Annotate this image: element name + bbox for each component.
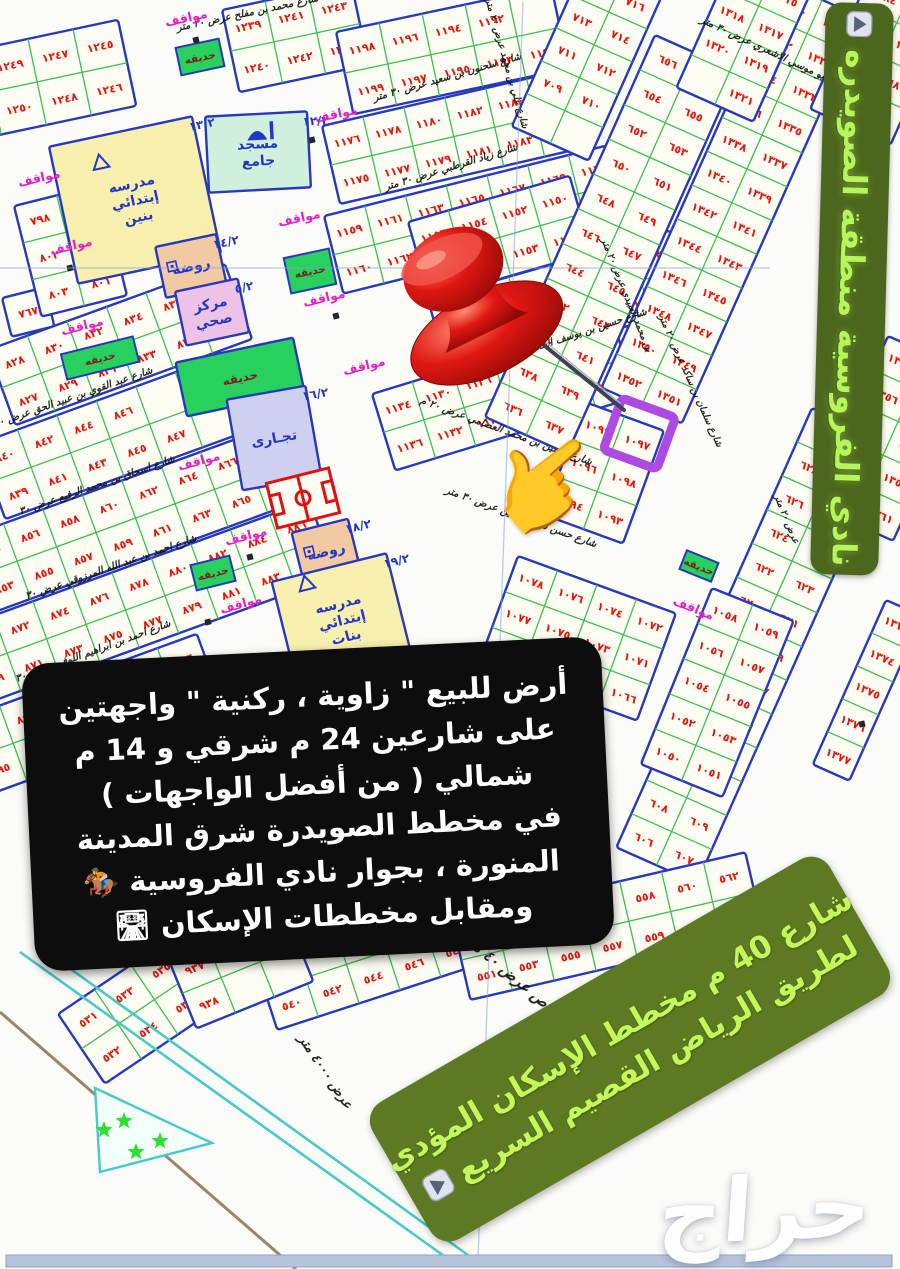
garden-plot: حديقه	[176, 39, 225, 76]
play-button-icon	[419, 1166, 457, 1204]
listing-screenshot: { "overlays": { "side_banner": { "text":…	[0, 0, 900, 1269]
utility-dot	[332, 312, 339, 319]
mosque: مسجدجامع١٢/٢	[205, 110, 333, 192]
plot-block: ١٢٥١١٢٤٩١٢٤٧١٢٤٥١٢٥٢١٢٥٠١٢٤٨١٢٤٦	[0, 20, 136, 144]
mosque-label: مسجد	[237, 135, 279, 153]
garden-plot: حديقه	[679, 550, 718, 581]
mosque-label: جامع	[241, 153, 275, 171]
triangle-park	[95, 1088, 212, 1172]
street-name-label: عرض ٤٠٠٠ متر	[294, 1031, 356, 1112]
plot-block: ١٣٧٣١٣٧٤١٣٧٥١٣٧٦١٣٧٧	[813, 600, 900, 781]
parking-label: مواقف	[16, 165, 61, 189]
garden-plot: حديقه	[284, 249, 336, 294]
haraj-watermark: حراج	[636, 1154, 894, 1266]
side-banner-label: نادي الفروسية منطقة الصويدره	[825, 49, 878, 567]
parking-label: مواقف	[277, 206, 322, 230]
parking-label: مواقف	[341, 353, 386, 378]
health-center-code: ٥/٢	[233, 278, 255, 296]
play-button-icon	[844, 11, 875, 38]
ad-text-box: أرض للبيع " زاوية ، ركنية " واجهتين على …	[21, 636, 615, 972]
